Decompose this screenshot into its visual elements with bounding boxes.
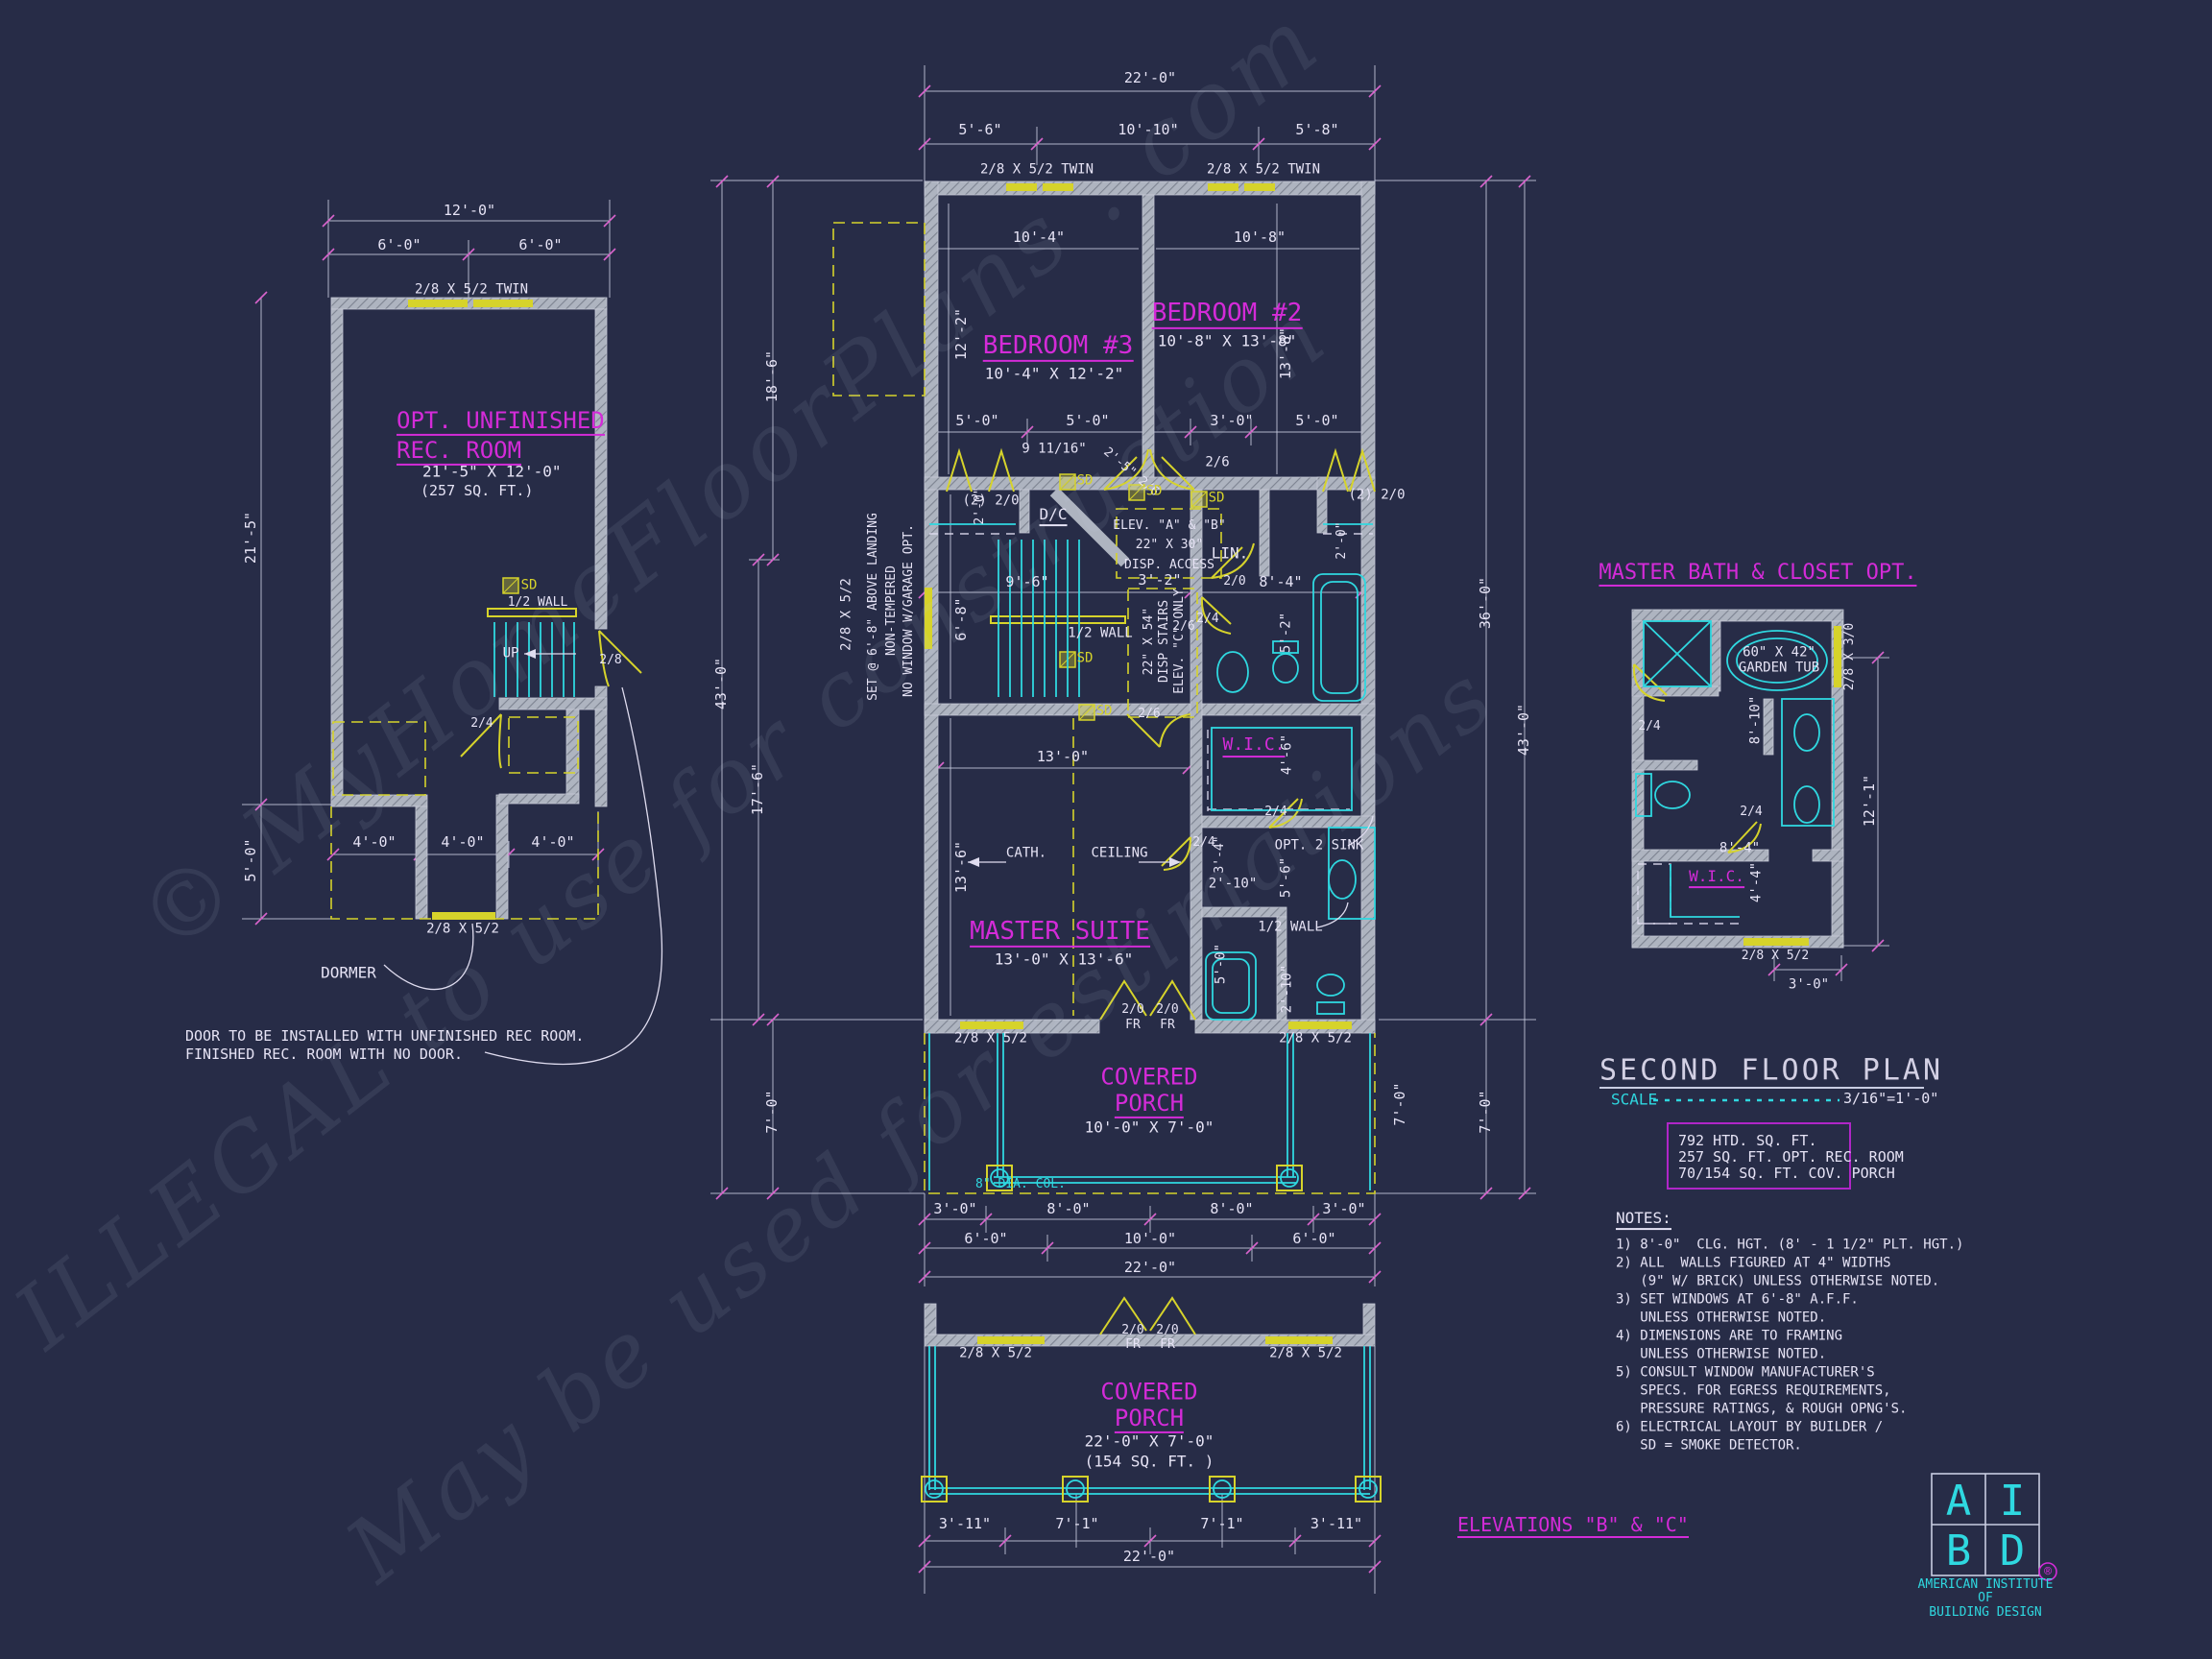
walls [331,181,1843,1346]
windows [408,183,1841,1344]
floorplan-sheet: © MyHomeFloorPlans . comILLEGAL to use f… [0,0,2212,1659]
title-block-graphics [1599,1088,2056,1580]
smoke-detector-icons [503,474,1207,720]
blueprint-drawing [0,0,2212,1659]
doors [461,449,1761,1334]
